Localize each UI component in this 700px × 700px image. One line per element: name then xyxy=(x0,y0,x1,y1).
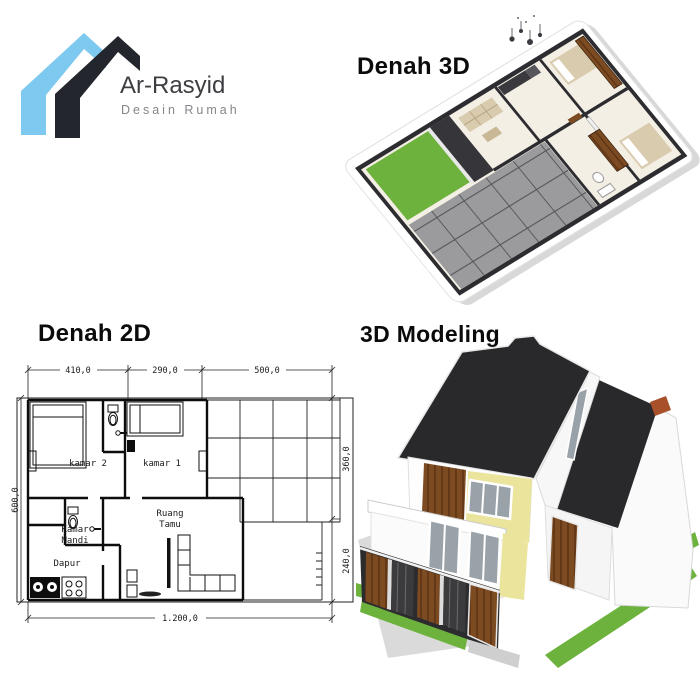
dim-bottom-1200: 1.200,0 xyxy=(162,614,198,624)
hanging-lamps xyxy=(512,21,540,41)
door-mat xyxy=(139,592,161,597)
tv-console xyxy=(167,538,171,588)
dim-top-500: 500,0 xyxy=(254,366,280,376)
label-dapur: Dapur xyxy=(53,559,81,569)
label-kamar1: kamar 1 xyxy=(143,459,181,469)
fence-dark-2 xyxy=(443,576,466,633)
upper-window xyxy=(468,480,512,519)
house-3d-render xyxy=(350,330,700,700)
brand-subtitle: Desain Rumah xyxy=(121,103,240,117)
filled-fixtures xyxy=(30,431,171,598)
denah-2d-title: Denah 2D xyxy=(38,320,151,348)
door-openings xyxy=(88,496,142,565)
label-kamar-mandi-2: Mandi xyxy=(61,536,88,546)
dim-top-290: 290,0 xyxy=(152,366,178,376)
dim-left-600: 600,0 xyxy=(11,487,21,513)
fence-wood-2 xyxy=(417,568,440,625)
fence-wood-1 xyxy=(365,552,388,609)
upper-wood-slats xyxy=(422,463,466,520)
toilet-tank-top xyxy=(108,405,118,412)
brand-title: Ar-Rasyid xyxy=(120,72,225,100)
toilet-tank-mid xyxy=(68,507,78,514)
iso-plan-group xyxy=(341,16,700,311)
right-wing-door xyxy=(549,516,578,590)
label-kamar-mandi-1: Kamar xyxy=(61,525,89,535)
fence-dark-1 xyxy=(391,560,414,617)
dim-top-410: 410,0 xyxy=(65,366,91,376)
door-leaf xyxy=(127,440,135,452)
label-ruang-tamu-2: Tamu xyxy=(159,520,181,530)
stove-white xyxy=(62,577,86,598)
bed-kamar1 xyxy=(127,402,183,436)
denah-2d-drawing: 410,0 290,0 500,0 600,0 360,0 240,0 1.20… xyxy=(10,355,360,645)
l-sofa xyxy=(178,535,235,591)
plot-boundary xyxy=(17,398,353,602)
design-poster: Ar-Rasyid Desain Rumah Denah 3D Denah 2D… xyxy=(0,0,700,700)
lamp-shades xyxy=(509,15,542,45)
label-kamar2: kamar 2 xyxy=(69,459,107,469)
denah-3d-render xyxy=(340,8,700,320)
corner-column xyxy=(499,533,528,600)
label-ruang-tamu-1: Ruang xyxy=(156,509,183,519)
